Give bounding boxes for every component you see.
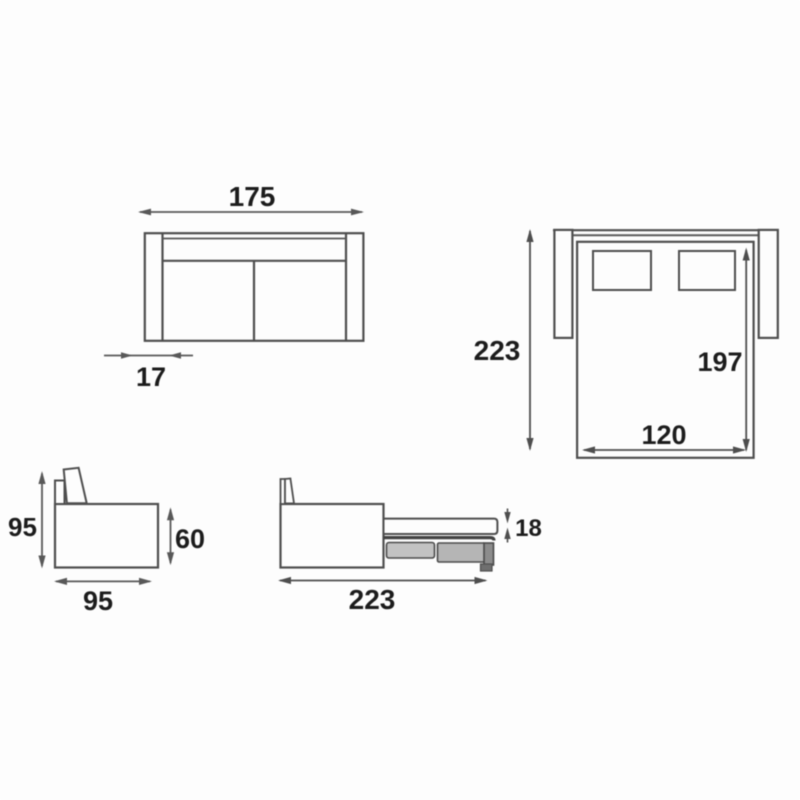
svg-text:60: 60	[175, 524, 205, 554]
svg-text:17: 17	[136, 362, 166, 392]
svg-text:197: 197	[697, 347, 742, 377]
svg-text:18: 18	[515, 515, 542, 542]
svg-text:95: 95	[8, 512, 37, 542]
svg-text:223: 223	[349, 584, 396, 615]
svg-text:120: 120	[641, 420, 686, 450]
svg-text:175: 175	[229, 181, 276, 212]
svg-text:95: 95	[83, 586, 113, 616]
svg-text:223: 223	[474, 335, 521, 366]
